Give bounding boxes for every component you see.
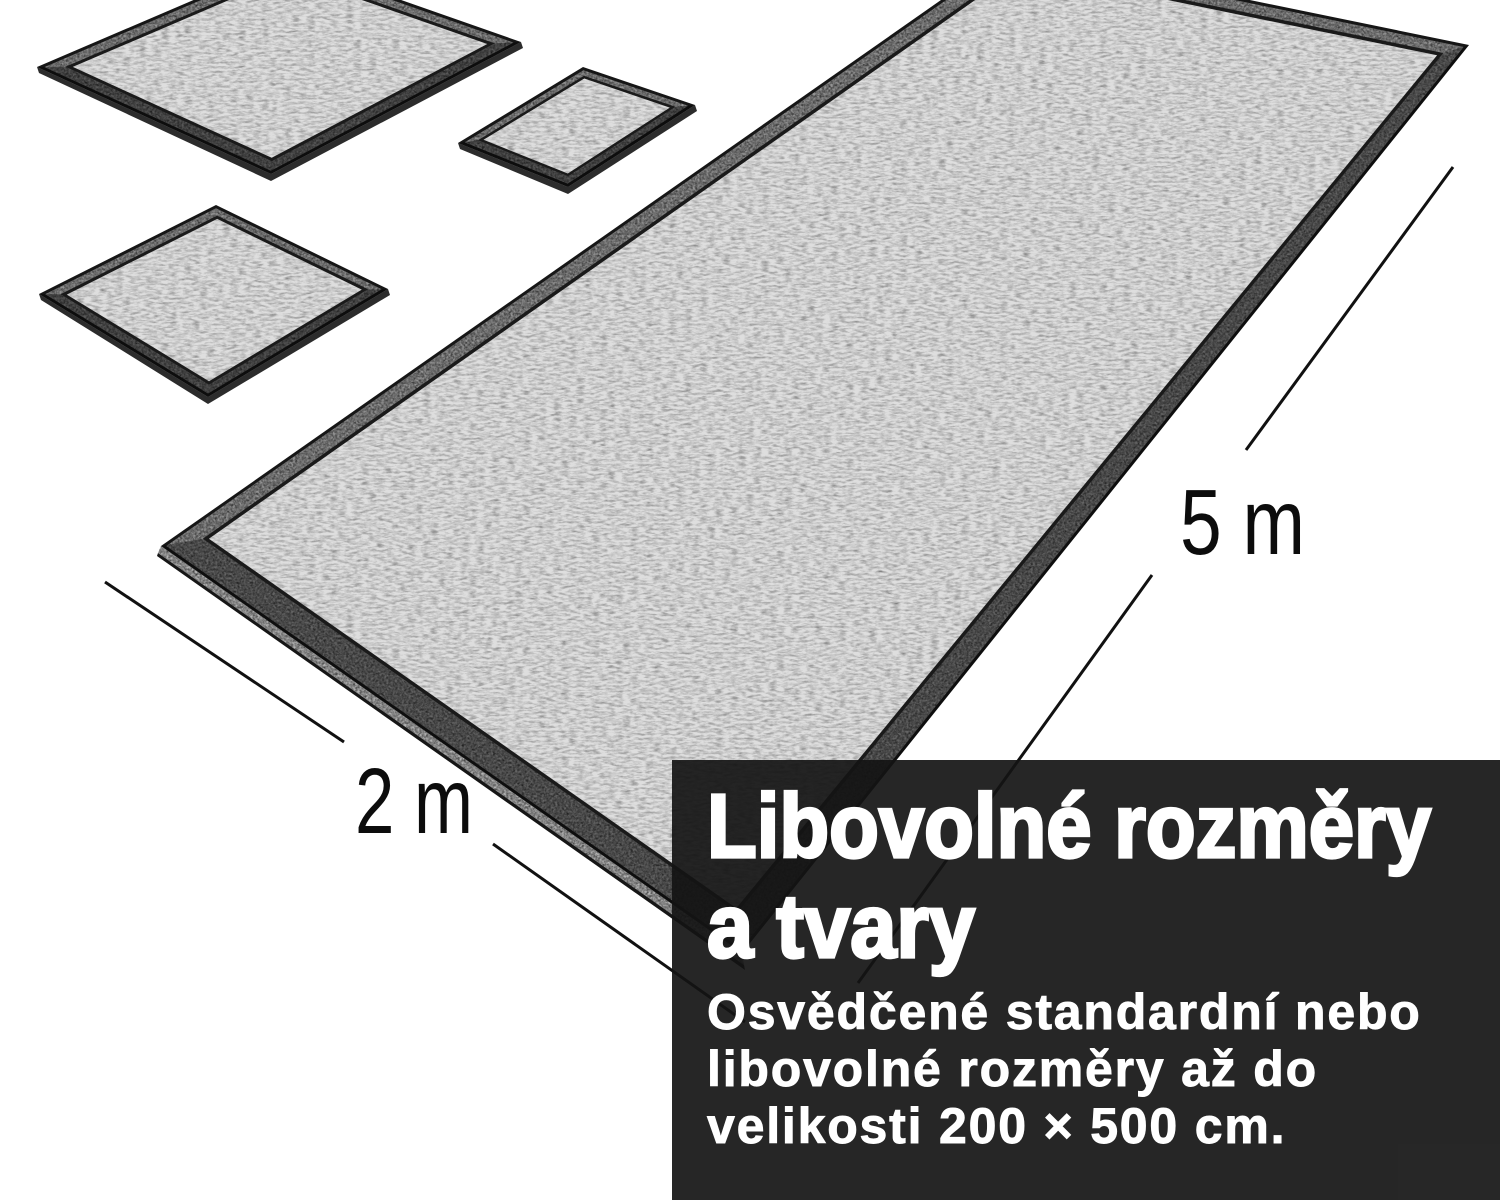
svg-text:libovolné rozměry až do: libovolné rozměry až do xyxy=(707,1041,1318,1097)
svg-text:Osvědčené standardní nebo: Osvědčené standardní nebo xyxy=(707,984,1422,1040)
svg-text:a tvary: a tvary xyxy=(707,877,975,977)
svg-text:5 m: 5 m xyxy=(1180,470,1305,574)
svg-text:velikosti 200 × 500 cm.: velikosti 200 × 500 cm. xyxy=(707,1098,1286,1154)
svg-text:2 m: 2 m xyxy=(355,749,473,853)
svg-text:Libovolné rozměry: Libovolné rozměry xyxy=(707,777,1431,877)
